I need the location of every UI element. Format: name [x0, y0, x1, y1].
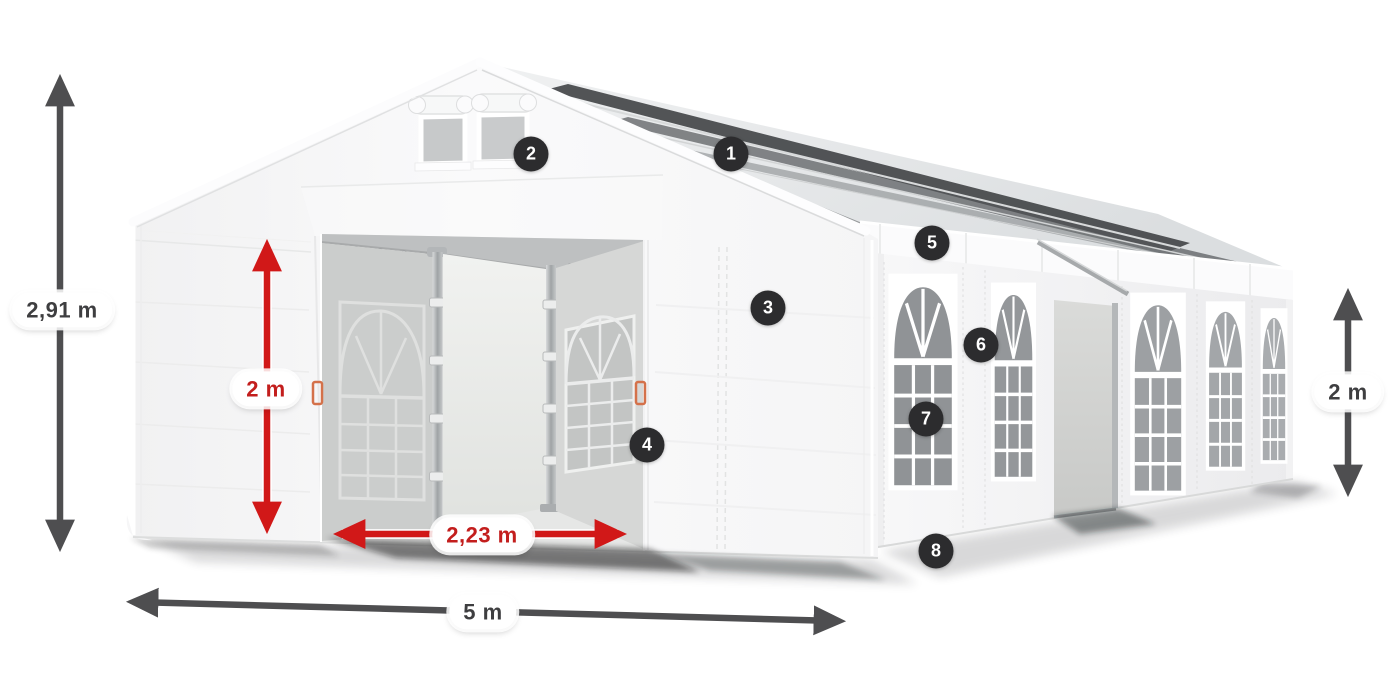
hotspot-marker-1[interactable]: 1	[714, 137, 749, 172]
dimension-label-total-height: 2,91 m	[12, 292, 112, 327]
hotspot-marker-8[interactable]: 8	[919, 534, 954, 569]
hotspot-marker-4[interactable]: 4	[630, 428, 665, 463]
dimension-label-entrance-width: 2,23 m	[432, 517, 532, 552]
hotspot-marker-5[interactable]: 5	[915, 226, 950, 261]
entrance-opening	[313, 234, 645, 551]
dimension-label-side-wall-height: 2 m	[1314, 374, 1381, 409]
hotspot-marker-2[interactable]: 2	[514, 137, 549, 172]
entrance-left-door	[321, 243, 440, 541]
hotspot-marker-3[interactable]: 3	[751, 291, 786, 326]
hotspot-marker-7[interactable]: 7	[909, 402, 944, 437]
entrance-right-door	[556, 241, 644, 549]
hotspot-marker-6[interactable]: 6	[964, 328, 999, 363]
tent-illustration	[0, 0, 1400, 700]
dimension-label-front-width: 5 m	[449, 594, 516, 629]
dimension-label-entrance-height: 2 m	[232, 371, 299, 406]
tent-dimension-diagram: 2,91 m 2 m 2,23 m 5 m 2 m 1 2 3 4 5 6 7 …	[0, 0, 1400, 700]
entrance-gap	[443, 254, 546, 528]
